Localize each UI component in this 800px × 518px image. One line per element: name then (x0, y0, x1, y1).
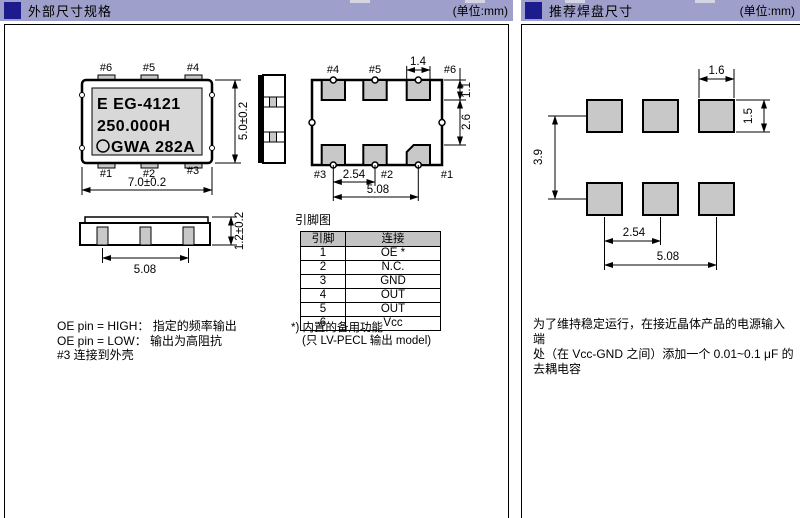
pin-table-col-conn: 连接 (346, 232, 441, 247)
dim-row-pitch: 3.9 (533, 116, 587, 199)
side-view-drawing: 5.08 1.2±0.2 (60, 205, 260, 280)
svg-text:7.0±0.2: 7.0±0.2 (128, 177, 166, 189)
note-line: 为了维持稳定运行，在接近晶体产品的电源输入端 (533, 317, 795, 347)
pin-table-footnote: *) 内置的备用功能 (只 LV-PECL 输出 model) (291, 322, 431, 348)
pin-label: #1 (100, 168, 112, 180)
top-view-drawing: E EG-4121 250.000H GWA 282A #6 #5 #4 #1 … (55, 55, 260, 200)
svg-text:2.54: 2.54 (343, 169, 366, 181)
svg-text:1.5: 1.5 (743, 108, 755, 124)
land-pads (587, 100, 734, 215)
marking-line1: E EG-4121 (97, 96, 181, 113)
pin-label: #4 (187, 62, 199, 74)
svg-text:5.08: 5.08 (367, 184, 389, 196)
page-edge-notch (350, 0, 370, 3)
decoupling-note: 为了维持稳定运行，在接近晶体产品的电源输入端 处（在 Vcc-GND 之间）添加… (533, 317, 795, 377)
left-panel-unit: (单位:mm) (453, 2, 508, 19)
pin-table: 引脚 连接 1 OE * 2 N.C. 3 GND 4 (300, 231, 441, 331)
left-panel-title: 外部尺寸规格 (28, 1, 112, 20)
footnote-line: (只 LV-PECL 输出 model) (302, 335, 431, 348)
bottom-view-drawing: #4 #5 #6 #3 #2 #1 1.4 1.1 2.6 (250, 55, 480, 205)
note-line: #3 连接到外壳 (57, 348, 237, 363)
pin-label: #4 (327, 64, 339, 76)
page-edge-notch (465, 0, 485, 3)
svg-text:5.0±0.2: 5.0±0.2 (238, 102, 250, 140)
svg-text:1.4: 1.4 (410, 56, 427, 68)
right-panel-header-bar: 推荐焊盘尺寸 (单位:mm) (521, 0, 800, 21)
svg-text:2.54: 2.54 (623, 227, 646, 239)
table-row: 5 OUT (301, 303, 441, 317)
dim-pad-height: 1.5 (736, 100, 770, 132)
note-line: 去耦电容 (533, 362, 795, 377)
pin-table-title: 引脚图 (295, 211, 441, 228)
note-line: OE pin = HIGH： 指定的频率输出 (57, 319, 237, 334)
dim-span: 5.08 (103, 248, 189, 276)
out-bar-cell: OUT (346, 303, 441, 317)
table-row: 1 OE * (301, 247, 441, 261)
svg-text:5.08: 5.08 (657, 251, 679, 263)
right-panel-unit: (单位:mm) (740, 2, 795, 19)
svg-text:1.1: 1.1 (461, 82, 473, 98)
dim-pad-width: 1.6 (699, 65, 734, 98)
left-panel-header-bar: 外部尺寸规格 (单位:mm) (0, 0, 513, 21)
pad-layout-drawing: 1.6 1.5 3.9 2.54 5.08 (530, 55, 786, 280)
table-row: 2 N.C. (301, 261, 441, 275)
dim-height: 1.2±0.2 (212, 212, 246, 250)
pin-label: #3 (314, 169, 326, 181)
note-line: OE pin = LOW： 输出为高阻抗 (57, 334, 237, 349)
pin-label: #1 (441, 169, 453, 181)
table-row: 4 OUT (301, 289, 441, 303)
table-row: 3 GND (301, 275, 441, 289)
page-edge-notch (565, 0, 585, 3)
dim-height: 5.0±0.2 (215, 80, 250, 163)
pin-label: #5 (143, 62, 155, 74)
oe-pin-notes: OE pin = HIGH： 指定的频率输出 OE pin = LOW： 输出为… (57, 319, 237, 363)
pin-table-col-pin: 引脚 (301, 232, 346, 247)
pin-label: #2 (381, 169, 393, 181)
header-square-icon (525, 2, 542, 19)
note-line: 处（在 Vcc-GND 之间）添加一个 0.01~0.1 μF 的 (533, 347, 795, 362)
pin-label: #5 (369, 64, 381, 76)
svg-text:2.6: 2.6 (461, 114, 473, 130)
header-square-icon (4, 2, 21, 19)
pin-label: #3 (187, 165, 199, 177)
pin-label: #6 (100, 62, 112, 74)
marking-line2: 250.000H (97, 118, 170, 135)
dim-row-gap: 2.6 (444, 100, 473, 145)
datasheet-page: 外部尺寸规格 (单位:mm) 推荐焊盘尺寸 (单位:mm) E (0, 0, 800, 518)
end-view (258, 75, 285, 163)
svg-text:1.6: 1.6 (709, 65, 725, 77)
svg-text:1.2±0.2: 1.2±0.2 (234, 212, 246, 250)
dim-pitch: 2.54 (605, 217, 661, 270)
pin-table-section: 引脚图 引脚 连接 1 OE * 2 N.C. 3 GND (293, 211, 441, 331)
svg-text:3.9: 3.9 (533, 149, 545, 165)
pin-label: #6 (444, 64, 456, 76)
footnote-line: *) 内置的备用功能 (291, 322, 431, 335)
page-edge-notch (695, 0, 715, 3)
marking-line3: GWA 282A (111, 139, 195, 156)
right-panel-title: 推荐焊盘尺寸 (549, 1, 633, 20)
svg-text:5.08: 5.08 (134, 264, 156, 276)
